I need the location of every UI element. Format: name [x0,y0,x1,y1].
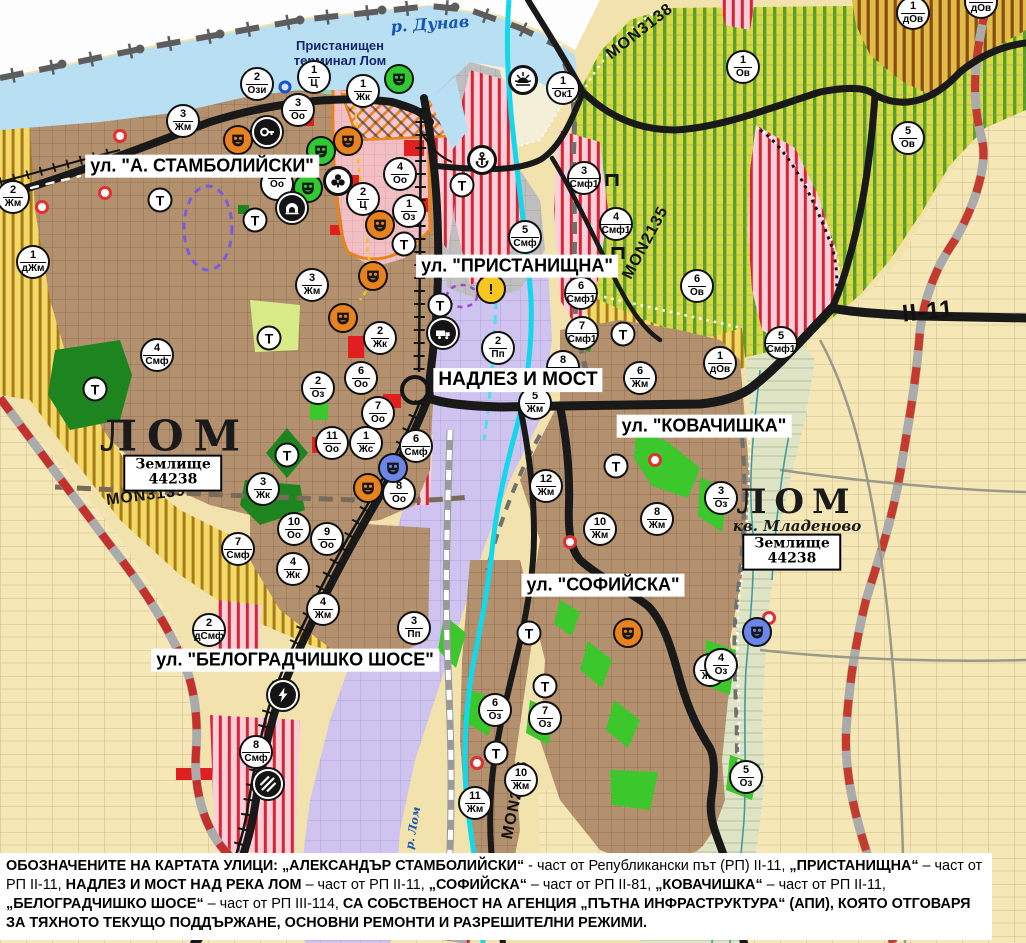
zone-code: дОв [901,13,925,26]
zone-badge[interactable]: 3Оо [281,93,315,127]
zone-badge[interactable]: 4Жк [276,552,310,586]
zone-code: Жс [357,443,376,456]
zone-number: 11 [326,431,338,442]
zone-badge[interactable]: 1Жс [349,426,383,460]
zone-code: Жк [354,91,372,104]
zone-number: 6 [578,281,584,292]
zone-badge[interactable]: 5Смф1 [764,326,798,360]
culture-icon[interactable] [328,303,358,333]
road-label-ii-11: II-11 [901,295,955,328]
street-label-stamboliyski: ул. "А. СТАМБОЛИЙСКИ" [85,155,319,178]
transport-stop-badge[interactable]: Т [257,326,282,351]
zone-badge[interactable]: 11Жм [458,786,492,820]
zone-code: Жм [3,197,23,210]
zone-badge[interactable]: 1дЖм [16,245,50,279]
zone-number: 6 [413,434,419,445]
zone-badge[interactable]: 3Смф1 [567,161,601,195]
zone-number: 3 [260,477,266,488]
red-ring-marker [648,453,662,467]
street-label-sofiyska: ул. "СОФИЙСКА" [521,574,684,597]
culture-icon[interactable] [613,618,643,648]
truck-icon[interactable] [428,318,458,348]
zone-number: 6 [358,366,364,377]
zone-code: Смф [511,237,538,250]
zone-number: 3 [309,273,315,284]
zone-badge[interactable]: 7Смф1 [565,316,599,350]
zone-badge[interactable]: 2дСмф [192,613,226,647]
land-unit-word: Землище [135,458,210,473]
zone-code: Жк [284,569,302,582]
zone-number: 5 [778,331,784,342]
port-terminal-line1: Пристанищен [294,39,386,54]
transport-stop-badge[interactable]: Т [450,173,475,198]
note-seg: – част от РП II-11, [763,877,886,893]
sun-icon[interactable] [508,65,538,95]
zone-code: Ц [357,199,368,212]
zone-number: 8 [253,740,259,751]
zone-badge[interactable]: 3Жк [246,472,280,506]
zone-number: 1 [910,1,916,12]
zone-code: Смф [402,446,429,459]
zone-number: 10 [515,768,527,779]
tunnel-icon[interactable] [277,193,307,223]
zone-badge[interactable]: 6Оо [344,361,378,395]
zone-code: дСмф [192,630,226,643]
zone-badge[interactable]: 7Оо [361,396,395,430]
zone-number: 1 [30,250,36,261]
zone-code: дОв [708,363,732,376]
zone-badge[interactable]: 6Жм [623,361,657,395]
zone-code: Жк [371,338,389,351]
note-seg: НАДЛЕЗ И МОСТ НАД РЕКА ЛОМ [66,877,302,893]
crossing-icon[interactable] [253,769,283,799]
zone-number: 11 [469,791,481,802]
zone-badge[interactable]: 8Жм [640,502,674,536]
zone-code: Оо [268,178,286,191]
zone-number: 3 [295,98,301,109]
club-icon[interactable] [323,166,353,196]
red-ring-marker [470,756,484,770]
zone-code: Оо [323,443,341,456]
zone-number: 4 [320,597,326,608]
zone-code: Оз [310,388,327,401]
transport-stop-badge[interactable]: Т [604,454,629,479]
zone-number: 1 [717,351,723,362]
svg-text:!: ! [489,281,494,298]
transport-stop-badge[interactable]: Т [484,741,509,766]
zone-code: Жм [465,803,485,816]
zone-code: дЖм [20,262,47,275]
key-icon[interactable] [252,117,282,147]
note-seg: „КОВАЧИШКА“ [655,877,762,893]
note-seg: „ПРИСТАНИЩНА“ [789,858,918,874]
zone-number: 1 [406,199,412,210]
zone-number: 4 [397,162,403,173]
zone-code: Оз [713,665,730,678]
zone-code: Жм [590,529,610,542]
zone-number: 12 [540,474,552,485]
zone-code: Жм [511,780,531,793]
zone-badge[interactable]: 4Жм [306,592,340,626]
zone-badge[interactable]: 6Ов [680,269,714,303]
zone-badge[interactable]: 2Оз [301,371,335,405]
zone-number: 5 [522,225,528,236]
zone-badge[interactable]: 1дОв [703,346,737,380]
culture-icon[interactable] [353,473,383,503]
red-ring-marker [35,200,49,214]
zone-number: 6 [694,274,700,285]
zone-badge[interactable]: 2Жк [363,321,397,355]
land-unit-box-2: Землище 44238 [742,534,841,571]
street-label-belogradchishko: ул. "БЕЛОГРАДЧИШКО ШОСЕ" [151,649,439,672]
zone-badge[interactable]: 5Смф [508,220,542,254]
zone-number: 3 [718,486,724,497]
city-label-lom: ЛОМ [100,412,250,461]
street-label-pristanishtna: ул. "ПРИСТАНИЩНА" [416,255,618,278]
zone-badge[interactable]: 9Оо [310,522,344,556]
zone-badge[interactable]: 10Жм [583,512,617,546]
zone-code: Оо [391,174,409,187]
zone-number: 4 [718,653,724,664]
city-label-lom-mladenovo: ЛОМ [736,482,857,522]
zone-code: Смф [242,752,269,765]
zone-badge[interactable]: 4Оо [383,157,417,191]
zone-number: 2 [206,618,212,629]
zone-badge[interactable]: 8Смф [239,735,273,769]
anchor-icon[interactable] [467,145,497,175]
zone-badge[interactable]: 4Смф [140,338,174,372]
zone-code: Оо [390,493,408,506]
zone-number: 5 [532,391,538,402]
gate-icon[interactable] [597,165,627,195]
culture-icon[interactable] [742,617,772,647]
transport-stop-badge[interactable]: Т [611,322,636,347]
zone-badge[interactable]: 1Ов [726,50,760,84]
zone-badge[interactable]: 6Смф1 [564,276,598,310]
zone-badge[interactable]: 10Жм [504,763,538,797]
zone-badge[interactable]: 12Жм [529,469,563,503]
zone-number: 7 [235,537,241,548]
zone-number: 7 [375,401,381,412]
street-label-nadlez-i-most: НАДЛЕЗ И МОСТ [433,368,602,392]
zone-number: 7 [579,321,585,332]
land-unit-box-1: Землище 44238 [123,455,222,492]
zone-number: 1 [360,79,366,90]
zone-badge[interactable]: 5Ов [891,121,925,155]
zone-number: 3 [180,109,186,120]
zone-code: Смф [224,549,251,562]
zoning-map[interactable]: 2Ози1Ц1Жк3Оо3Жм4ОоОо2Ц1Оз2Жм1дЖм3Жм1Ок11… [0,0,1026,943]
zone-number: 9 [324,527,330,538]
zone-badge[interactable]: 7Смф [221,532,255,566]
zone-code: Жм [647,519,667,532]
zone-code: Оз [487,710,504,723]
zone-code: Ов [899,138,917,151]
zone-badge[interactable]: 7Оз [528,701,562,735]
zone-number: 2 [10,185,16,196]
zone-number: 3 [411,616,417,627]
transport-stop-badge[interactable]: Т [275,443,300,468]
zone-number: 6 [637,366,643,377]
zone-badge[interactable]: 4Смф1 [599,207,633,241]
zone-badge[interactable]: 2Ози [240,67,274,101]
red-ring-marker [563,535,577,549]
zone-code: Оз [537,718,554,731]
note-seg: „БЕЛОГРАДЧИШКО ШОСЕ“ [6,896,204,912]
transport-stop-badge[interactable]: Т [517,621,542,646]
zone-number: 2 [495,336,501,347]
zone-number: 1 [978,0,984,1]
zone-number: 10 [288,517,300,528]
zone-code: Смф [143,355,170,368]
note-seg: ОБОЗНАЧЕНИТЕ НА КАРТАТА УЛИЦИ: „АЛЕКСАНД… [6,858,524,874]
zone-badge[interactable]: 3Пп [397,611,431,645]
zone-code: Оо [352,378,370,391]
zone-number: 5 [743,765,749,776]
zone-badge[interactable]: 1Жк [346,74,380,108]
red-ring-marker [98,186,112,200]
zone-code: Ов [688,286,706,299]
zone-number: 3 [581,166,587,177]
zone-number: 6 [492,698,498,709]
zone-code: Смф1 [566,333,599,346]
transport-stop-badge[interactable]: Т [428,293,453,318]
culture-icon[interactable] [378,453,408,483]
lightning-icon[interactable] [268,680,298,710]
culture-icon[interactable] [333,126,363,156]
zone-badge[interactable]: 1Оз [392,194,426,228]
zone-number: 8 [560,355,566,366]
red-ring-marker [113,129,127,143]
culture-icon[interactable] [358,261,388,291]
zone-number: 4 [154,343,160,354]
zone-badge[interactable]: 10Оо [277,512,311,546]
zone-number: 2 [315,376,321,387]
zone-code: Смф1 [765,343,798,356]
zone-badge[interactable]: 6Оз [478,693,512,727]
zone-badge[interactable]: 11Оо [315,426,349,460]
zone-code: Оз [738,777,755,790]
zone-badge[interactable]: 4Оз [704,648,738,682]
zone-code: Оо [318,539,336,552]
zone-code: Пп [405,628,422,641]
zone-code: Оо [289,110,307,123]
culture-icon[interactable] [384,64,414,94]
zone-code: Жм [173,121,193,134]
culture-icon[interactable] [365,210,395,240]
blue-ring-marker [279,81,292,94]
land-unit-code: 44238 [754,552,829,567]
note-seg: – част от РП II-11, [302,877,429,893]
zone-code: Жм [302,285,322,298]
zone-code: Ц [308,77,319,90]
zone-code: Ок1 [552,88,574,101]
land-unit-code: 44238 [135,473,210,488]
transport-stop-badge[interactable]: Т [83,377,108,402]
land-unit-word: Землище [754,537,829,552]
zone-number: 2 [360,187,366,198]
note-seg: – част от РП III-114, [204,896,343,912]
zone-code: Оз [713,498,730,511]
zone-code: Жм [536,486,556,499]
transport-stop-badge[interactable]: Т [243,208,268,233]
transport-stop-badge[interactable]: Т [533,674,558,699]
zone-number: 10 [594,517,606,528]
zone-code: Смф1 [600,224,633,237]
zone-number: 4 [290,557,296,568]
zone-number: 2 [254,72,260,83]
note-seg: - част от Републикански път (РП) II-11, [524,858,789,874]
zone-number: 1 [740,55,746,66]
zone-code: Жм [630,378,650,391]
zone-badge[interactable]: 5Оз [729,760,763,794]
zone-code: Оз [401,211,418,224]
zone-badge[interactable]: 3Жм [166,104,200,138]
zone-code: Оо [369,413,387,426]
note-seg: „СОФИЙСКА“ [429,877,527,893]
zone-badge[interactable]: 3Оз [704,481,738,515]
street-label-kovachishka: ул. "КОВАЧИШКА" [617,415,792,438]
zone-number: 2 [377,326,383,337]
quarter-label: кв. Младеново [733,517,862,535]
zone-number: 4 [613,212,619,223]
zone-code: Смф1 [568,178,601,191]
zone-badge[interactable]: 2Пп [481,331,515,365]
note-seg: – част от РП II-81, [527,877,655,893]
zone-code: дОв [969,2,993,15]
zone-code: Жм [525,403,545,416]
zone-code: Ов [734,67,752,80]
zone-number: 1 [311,65,317,76]
zone-code: Ози [246,84,269,97]
zone-badge[interactable]: 3Жм [295,268,329,302]
zone-badge[interactable]: 1Ц [297,60,331,94]
zone-code: Жк [254,489,272,502]
transport-stop-badge[interactable]: Т [392,232,417,257]
zone-code: Оо [285,529,303,542]
transport-stop-badge[interactable]: Т [148,188,173,213]
zone-number: 7 [542,706,548,717]
zone-code: Пп [489,348,506,361]
zone-number: 1 [363,431,369,442]
map-legend-note: ОБОЗНАЧЕНИТЕ НА КАРТАТА УЛИЦИ: „АЛЕКСАНД… [0,853,992,940]
zone-badge[interactable]: 1Ок1 [546,71,580,105]
zone-number: 5 [905,126,911,137]
zone-number: 8 [654,507,660,518]
culture-icon[interactable] [223,125,253,155]
zone-code: Смф1 [565,293,598,306]
warning-icon[interactable]: ! [476,274,506,304]
zone-number: 1 [560,76,566,87]
zone-code: Жм [313,609,333,622]
